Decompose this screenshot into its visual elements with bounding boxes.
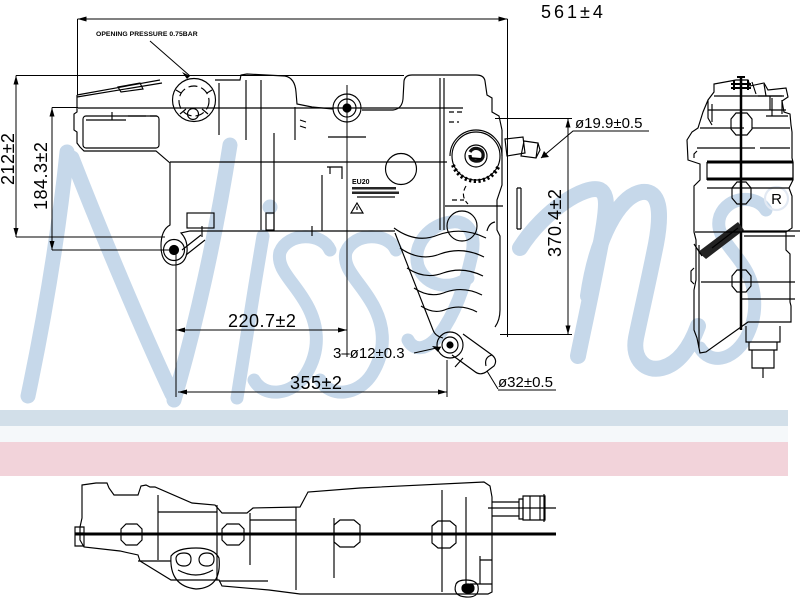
svg-text:561±4: 561±4 — [541, 2, 606, 22]
svg-text:3–ø12±0.3: 3–ø12±0.3 — [333, 345, 405, 362]
svg-text:370.4±2: 370.4±2 — [545, 189, 565, 257]
svg-text:EU20: EU20 — [352, 179, 370, 186]
svg-text:ø19.9±0.5: ø19.9±0.5 — [575, 115, 642, 132]
svg-text:ø32±0.5: ø32±0.5 — [498, 374, 553, 391]
svg-text:R: R — [771, 191, 782, 208]
svg-text:OPENING PRESSURE 0.75BAR: OPENING PRESSURE 0.75BAR — [96, 31, 198, 38]
svg-text:184.3±2: 184.3±2 — [31, 142, 51, 210]
svg-text:220.7±2: 220.7±2 — [228, 311, 296, 331]
svg-text:212±2: 212±2 — [0, 133, 18, 185]
svg-text:355±2: 355±2 — [290, 373, 342, 393]
